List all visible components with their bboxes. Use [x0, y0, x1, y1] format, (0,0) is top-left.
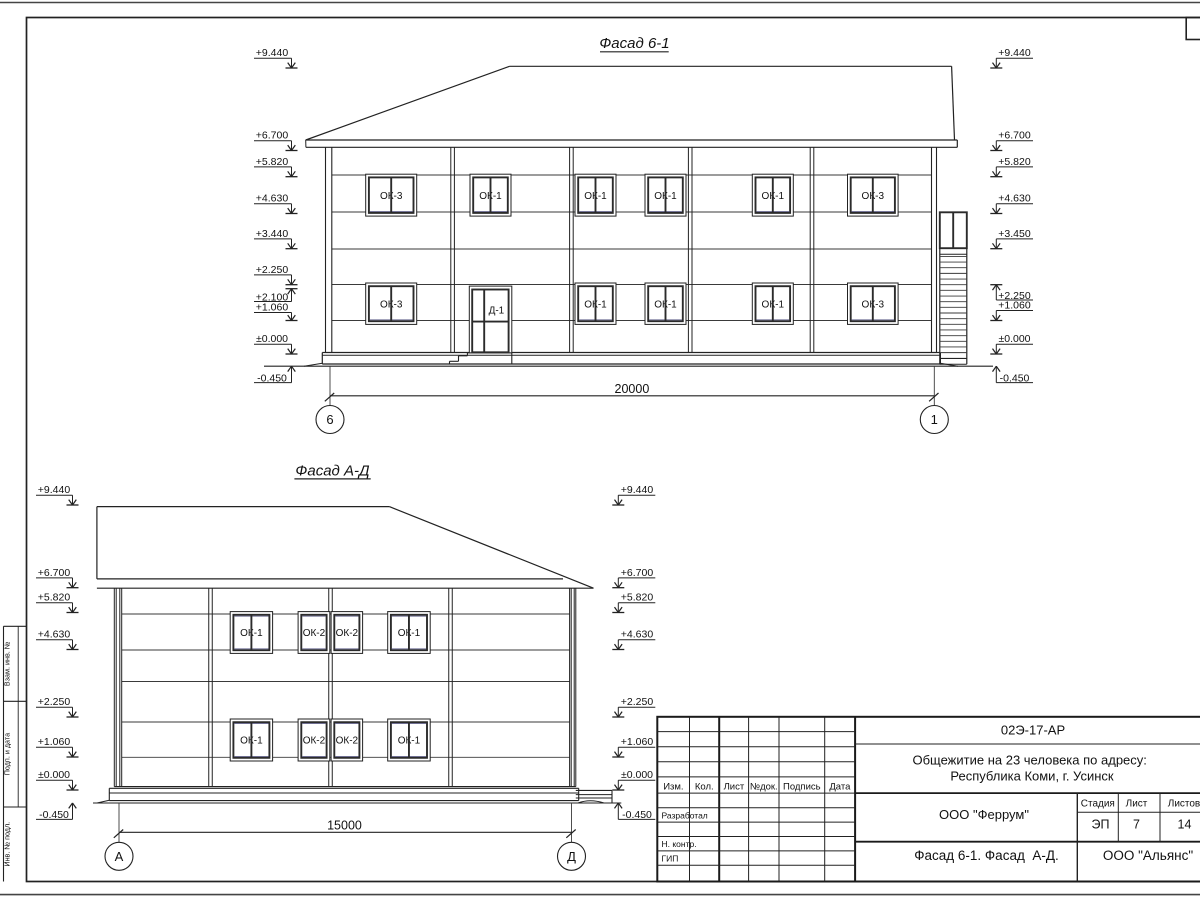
svg-text:ОК-2: ОК-2: [303, 628, 326, 639]
svg-text:+9.440: +9.440: [998, 47, 1031, 59]
svg-text:+1.060: +1.060: [998, 300, 1031, 312]
svg-text:+1.060: +1.060: [621, 736, 654, 748]
svg-text:ОК-2: ОК-2: [303, 736, 326, 747]
svg-text:+1.060: +1.060: [256, 302, 289, 314]
svg-text:+6.700: +6.700: [38, 567, 71, 579]
svg-text:Общежитие на 23 человека по ад: Общежитие на 23 человека по адресу:: [912, 752, 1146, 767]
svg-text:+1.060: +1.060: [38, 736, 71, 748]
svg-text:±0.000: ±0.000: [38, 769, 70, 781]
svg-text:+4.630: +4.630: [256, 193, 289, 205]
svg-text:Изм.: Изм.: [663, 781, 683, 792]
svg-text:ОК-2: ОК-2: [336, 628, 359, 639]
svg-text:1: 1: [931, 412, 938, 427]
svg-text:+5.820: +5.820: [621, 592, 654, 604]
svg-text:Разработал: Разработал: [662, 810, 708, 820]
svg-text:Фасад 6-1: Фасад 6-1: [599, 35, 669, 52]
svg-text:Д: Д: [567, 849, 576, 864]
svg-text:Листов: Листов: [1168, 799, 1200, 810]
svg-text:-0.450: -0.450: [39, 809, 69, 821]
svg-text:-0.450: -0.450: [257, 372, 287, 384]
svg-text:ОК-2: ОК-2: [336, 736, 359, 747]
svg-text:Дата: Дата: [829, 781, 851, 792]
svg-text:02Э-17-АР: 02Э-17-АР: [1001, 722, 1065, 737]
svg-text:ГИП: ГИП: [662, 854, 679, 864]
svg-text:+2.250: +2.250: [38, 696, 71, 708]
svg-text:Лист: Лист: [724, 781, 745, 792]
svg-text:14: 14: [1178, 817, 1192, 831]
svg-text:+5.820: +5.820: [256, 156, 289, 168]
svg-text:-0.450: -0.450: [1000, 372, 1030, 384]
svg-text:ООО "Феррум": ООО "Феррум": [939, 807, 1029, 822]
svg-text:+9.440: +9.440: [38, 484, 71, 496]
svg-text:№док.: №док.: [750, 781, 778, 792]
svg-text:+6.700: +6.700: [998, 130, 1031, 142]
svg-text:Подп. и дата: Подп. и дата: [3, 733, 12, 775]
svg-text:+5.820: +5.820: [38, 592, 71, 604]
svg-text:Подпись: Подпись: [783, 781, 821, 792]
svg-text:+4.630: +4.630: [998, 193, 1031, 205]
svg-text:±0.000: ±0.000: [256, 333, 288, 345]
svg-text:+4.630: +4.630: [38, 629, 71, 641]
svg-text:15000: 15000: [327, 819, 362, 833]
svg-text:+6.700: +6.700: [256, 130, 289, 142]
svg-text:20000: 20000: [615, 382, 650, 396]
svg-text:6: 6: [326, 412, 333, 427]
svg-text:А: А: [115, 849, 124, 864]
svg-text:Взам. инв. №: Взам. инв. №: [3, 641, 12, 686]
svg-text:+6.700: +6.700: [621, 567, 654, 579]
svg-text:+3.450: +3.450: [998, 228, 1031, 240]
svg-text:Кол.: Кол.: [695, 781, 714, 792]
svg-text:Фасад А-Д: Фасад А-Д: [295, 462, 370, 479]
svg-text:±0.000: ±0.000: [621, 769, 653, 781]
svg-text:+3.440: +3.440: [256, 228, 289, 240]
svg-text:+9.440: +9.440: [256, 47, 289, 59]
svg-text:Стадия: Стадия: [1081, 799, 1115, 810]
svg-text:+2.250: +2.250: [256, 264, 289, 276]
svg-text:Н. контр.: Н. контр.: [662, 839, 697, 849]
svg-text:+5.820: +5.820: [998, 156, 1031, 168]
svg-text:±0.000: ±0.000: [998, 333, 1030, 345]
svg-text:Лист: Лист: [1126, 799, 1148, 810]
svg-text:-0.450: -0.450: [622, 809, 652, 821]
svg-text:Фасад 6-1. Фасад А-Д.: Фасад 6-1. Фасад А-Д.: [914, 848, 1058, 863]
svg-text:+9.440: +9.440: [621, 484, 654, 496]
svg-text:ООО "Альянс": ООО "Альянс": [1103, 848, 1193, 863]
svg-text:Республика Коми, г. Усинск: Республика Коми, г. Усинск: [950, 769, 1113, 784]
svg-text:+2.250: +2.250: [621, 696, 654, 708]
svg-text:+4.630: +4.630: [621, 629, 654, 641]
svg-text:ЭП: ЭП: [1092, 817, 1110, 831]
svg-text:7: 7: [1133, 817, 1140, 831]
svg-text:Д-1: Д-1: [489, 305, 505, 316]
svg-text:Инв. № подл.: Инв. № подл.: [3, 822, 12, 867]
